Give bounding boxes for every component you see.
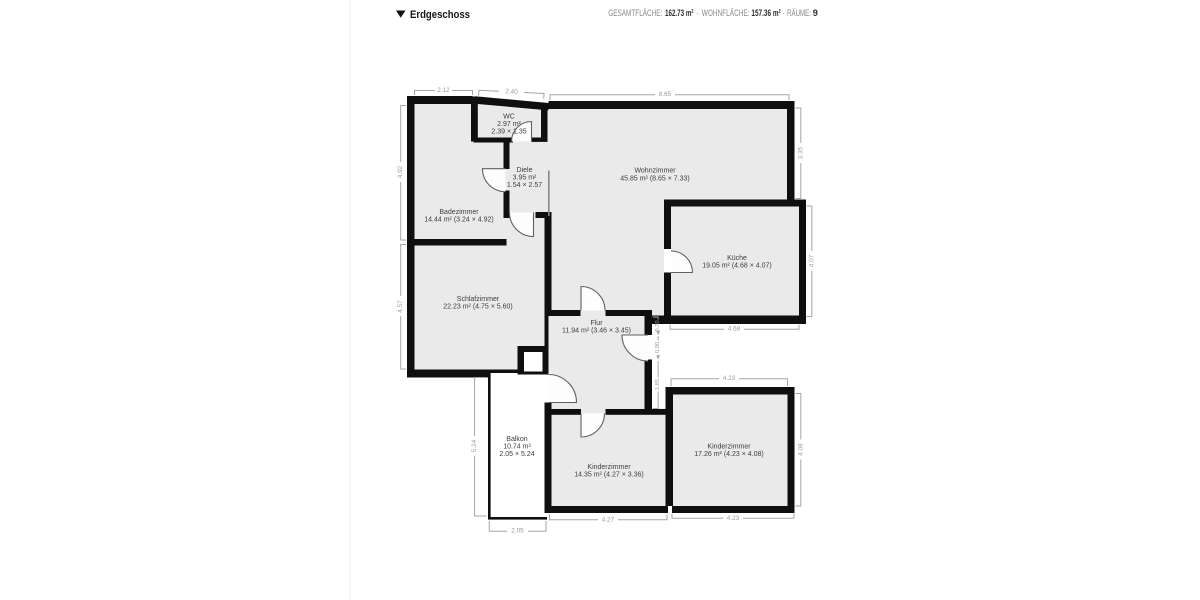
svg-text:·: · [782, 8, 785, 18]
svg-text:22.23 m² (4.75 × 5.60): 22.23 m² (4.75 × 5.60) [443, 304, 512, 311]
svg-text:RÄUME:: RÄUME: [787, 8, 811, 18]
svg-text:17.26 m² (4.23 × 4.08): 17.26 m² (4.23 × 4.08) [694, 451, 763, 458]
svg-text:19.05 m² (4.68 × 4.07): 19.05 m² (4.68 × 4.07) [702, 263, 771, 270]
svg-text:4.68: 4.68 [728, 326, 741, 333]
svg-text:WOHNFLÄCHE:: WOHNFLÄCHE: [702, 8, 750, 18]
svg-text:2.40: 2.40 [505, 88, 518, 96]
svg-text:Flur: Flur [590, 320, 603, 327]
svg-text:Balkon: Balkon [506, 436, 528, 443]
svg-text:1.54 × 2.57: 1.54 × 2.57 [507, 182, 542, 189]
svg-text:Kinderzimmer: Kinderzimmer [587, 464, 631, 471]
svg-text:3.95 m²: 3.95 m² [513, 175, 537, 182]
svg-text:14.35 m² (4.27 × 3.36): 14.35 m² (4.27 × 3.36) [574, 472, 643, 479]
svg-text:8.65: 8.65 [659, 91, 672, 98]
svg-text:157.36 m²: 157.36 m² [751, 8, 780, 18]
svg-text:4.23: 4.23 [727, 515, 740, 522]
svg-text:10.74 m²: 10.74 m² [503, 443, 531, 450]
svg-text:2.05 × 5.24: 2.05 × 5.24 [499, 451, 534, 458]
svg-text:9: 9 [813, 8, 818, 18]
svg-text:Badezimmer: Badezimmer [439, 209, 479, 216]
svg-text:3.35: 3.35 [797, 146, 804, 159]
svg-text:4.57: 4.57 [397, 300, 404, 313]
svg-text:WC: WC [503, 114, 515, 121]
svg-text:4.07: 4.07 [808, 254, 815, 267]
svg-text:Wohnzimmer: Wohnzimmer [634, 168, 676, 175]
svg-text:14.44 m² (3.24 × 4.92): 14.44 m² (3.24 × 4.92) [424, 217, 493, 224]
svg-text:0.90: 0.90 [655, 342, 661, 353]
svg-text:0.70: 0.70 [655, 320, 661, 331]
svg-text:GESAMTFLÄCHE:: GESAMTFLÄCHE: [608, 8, 662, 18]
svg-text:11.94 m² (3.46 × 3.45): 11.94 m² (3.46 × 3.45) [562, 328, 631, 335]
svg-text:2.12: 2.12 [437, 87, 450, 94]
svg-text:1.85: 1.85 [655, 379, 661, 390]
svg-text:Diele: Diele [517, 167, 533, 174]
svg-text:4.92: 4.92 [397, 165, 404, 178]
svg-text:Küche: Küche [727, 255, 747, 262]
svg-text:Kinderzimmer: Kinderzimmer [707, 443, 751, 450]
svg-text:45.85 m² (8.65 × 7.33): 45.85 m² (8.65 × 7.33) [620, 175, 689, 182]
svg-text:2.97 m²: 2.97 m² [497, 121, 521, 128]
svg-text:4.23: 4.23 [723, 375, 736, 382]
svg-text:Schlafzimmer: Schlafzimmer [457, 296, 500, 303]
svg-text:2.05: 2.05 [511, 528, 524, 535]
svg-text:162.73 m²: 162.73 m² [665, 8, 694, 18]
svg-text:4.27: 4.27 [602, 516, 615, 523]
svg-text:5.24: 5.24 [471, 439, 478, 452]
svg-text:Erdgeschoss: Erdgeschoss [410, 9, 470, 21]
svg-text:4.08: 4.08 [797, 443, 804, 456]
svg-text:2.39 × 1.35: 2.39 × 1.35 [491, 129, 526, 136]
svg-text:·: · [696, 8, 699, 18]
